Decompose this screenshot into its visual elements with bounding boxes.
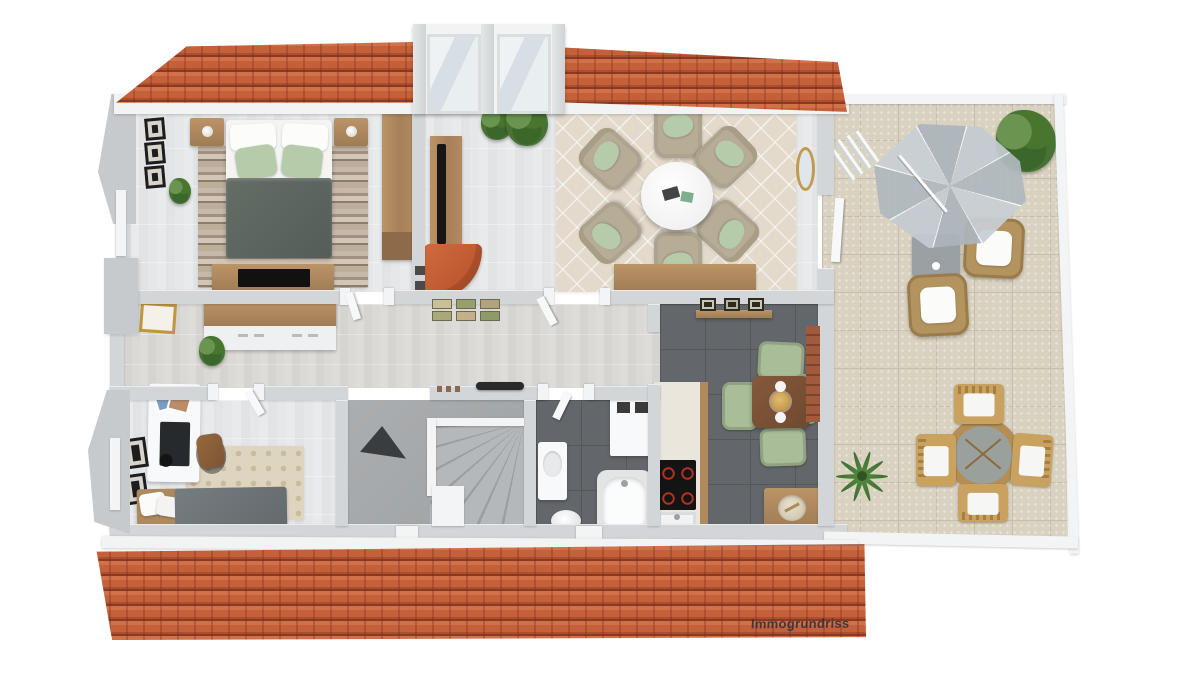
brick-accent-wall bbox=[806, 326, 820, 422]
wicker-armchair-2 bbox=[906, 272, 969, 337]
dormer bbox=[413, 24, 565, 114]
wall-bathroom-left bbox=[524, 400, 536, 526]
chair-cushion bbox=[1018, 445, 1045, 477]
cabinet-vent bbox=[635, 402, 648, 413]
dormer-post bbox=[552, 24, 565, 114]
table-decor bbox=[680, 191, 694, 203]
terrace-chair-west bbox=[916, 434, 956, 486]
hall-picture bbox=[457, 300, 475, 308]
hall-picture bbox=[433, 312, 451, 320]
side-wall-fragment bbox=[104, 258, 138, 334]
watermark: Immogrundriss bbox=[751, 616, 850, 632]
hall-picture-group bbox=[433, 300, 501, 322]
coat-rail bbox=[476, 382, 524, 390]
green-pillow bbox=[587, 219, 624, 254]
palm-center bbox=[857, 471, 867, 481]
table-lamp bbox=[202, 126, 213, 137]
hall-picture bbox=[457, 312, 475, 320]
palm-plant bbox=[836, 440, 888, 512]
double-bed bbox=[226, 120, 332, 258]
door-jamb bbox=[584, 384, 594, 400]
terrace-chair-east bbox=[1010, 433, 1054, 488]
hall-picture bbox=[481, 300, 499, 308]
nightstand-right bbox=[334, 118, 368, 146]
wall-office-right bbox=[336, 400, 348, 526]
door-jamb bbox=[538, 384, 548, 400]
wardrobe-handle bbox=[254, 334, 264, 337]
table-book bbox=[662, 186, 680, 201]
wardrobe-handle bbox=[308, 334, 318, 337]
table-plate bbox=[775, 412, 786, 423]
chair-cushion bbox=[968, 493, 999, 515]
cabinet-vent bbox=[617, 402, 630, 413]
knee-wall-window bbox=[110, 438, 120, 510]
office-plant bbox=[199, 336, 225, 366]
kitchen-counter-edge bbox=[700, 382, 708, 526]
stair-wall-top bbox=[434, 418, 524, 426]
hall-picture bbox=[433, 300, 451, 308]
sink-faucet bbox=[674, 514, 680, 520]
bathroom-vanity bbox=[538, 442, 567, 500]
terrace-chair-north bbox=[954, 384, 1004, 424]
tv-lowboard bbox=[430, 136, 462, 254]
wall-kitchen-left-upper bbox=[648, 304, 660, 332]
wall-hall-bottom-b bbox=[258, 386, 348, 400]
terrace-railing-top bbox=[824, 94, 1066, 104]
cooktop bbox=[658, 460, 696, 510]
table-centerpiece bbox=[771, 392, 790, 411]
side-table-cup bbox=[932, 262, 940, 270]
bedroom-dresser bbox=[212, 264, 334, 292]
kitchen-sideboard bbox=[764, 488, 822, 528]
door-jamb bbox=[208, 384, 218, 400]
table-lamp bbox=[346, 126, 357, 137]
bedroom-plant bbox=[169, 178, 191, 204]
sideboard-bowl bbox=[778, 495, 806, 521]
door-jamb bbox=[600, 288, 610, 305]
coffee-table bbox=[641, 162, 713, 230]
terrace-chair-south bbox=[958, 484, 1008, 522]
hall-shoes bbox=[437, 386, 463, 392]
hallway-floor bbox=[116, 304, 660, 388]
green-pillow bbox=[589, 137, 623, 174]
flat-tv bbox=[238, 269, 310, 287]
wall-bedroom-right bbox=[412, 100, 425, 294]
floor-plan-render: Immogrundriss bbox=[0, 0, 1200, 675]
standing-frame bbox=[700, 298, 716, 311]
knee-wall-window bbox=[116, 190, 126, 256]
dormer-window-right bbox=[497, 34, 551, 114]
chair-seat bbox=[195, 432, 225, 469]
dormer-post bbox=[481, 24, 494, 114]
bedroom-wardrobe bbox=[382, 110, 414, 260]
bedroom-wall-frame bbox=[144, 165, 166, 189]
chair-cushion bbox=[964, 393, 995, 416]
hall-picture bbox=[481, 312, 499, 320]
standing-frame bbox=[724, 298, 740, 311]
green-pillow bbox=[715, 216, 749, 253]
green-pillow bbox=[661, 112, 695, 140]
wall-right-upper bbox=[818, 100, 834, 195]
bedroom-wall-frame bbox=[144, 141, 166, 165]
wall-vent bbox=[415, 281, 425, 290]
dormer-post bbox=[413, 24, 426, 114]
roof-top-right bbox=[543, 42, 847, 114]
bed-pillow-green bbox=[280, 144, 324, 181]
wardrobe-base bbox=[382, 232, 414, 260]
wardrobe-handle bbox=[292, 334, 302, 337]
chair-cushion bbox=[920, 286, 957, 324]
terrace-dining-table bbox=[946, 418, 1020, 492]
kitchen-chair-south bbox=[759, 427, 806, 467]
stair-wall-block bbox=[432, 486, 464, 526]
wall-mid-a bbox=[116, 290, 348, 304]
roof-bottom: Immogrundriss bbox=[92, 544, 866, 640]
bed-duvet bbox=[226, 178, 332, 258]
roof-top-left bbox=[116, 40, 452, 104]
green-pillow bbox=[711, 136, 748, 171]
tv-screen bbox=[437, 144, 446, 244]
stair-wall-left bbox=[427, 418, 436, 496]
kitchen-table bbox=[752, 376, 810, 428]
bed-pillow-green bbox=[234, 143, 279, 181]
office-wardrobe bbox=[204, 302, 336, 350]
table-plate bbox=[775, 381, 786, 392]
vanity-basin bbox=[543, 451, 562, 477]
sideboard-shelf bbox=[696, 310, 772, 318]
door-jamb bbox=[384, 288, 394, 305]
wall-right-lower bbox=[818, 268, 834, 526]
living-sideboard bbox=[614, 264, 756, 292]
wall-vent bbox=[415, 266, 425, 275]
wardrobe-top bbox=[204, 302, 336, 326]
standing-frame bbox=[748, 298, 764, 311]
wardrobe-handle bbox=[238, 334, 248, 337]
wall-kitchen-left-lower bbox=[648, 384, 660, 526]
picture-sideboard bbox=[696, 298, 772, 318]
office-chair bbox=[189, 428, 233, 481]
gold-framed-picture bbox=[142, 305, 174, 331]
side-wall-fragment bbox=[88, 390, 130, 540]
bowl-spoon bbox=[784, 502, 800, 512]
chair-cushion bbox=[924, 446, 949, 476]
nightstand-left bbox=[190, 118, 224, 146]
dormer-window-left bbox=[427, 34, 481, 114]
gold-oval-mirror bbox=[799, 150, 812, 188]
bedroom-wall-frame bbox=[144, 117, 166, 141]
tub-faucet bbox=[621, 480, 628, 487]
